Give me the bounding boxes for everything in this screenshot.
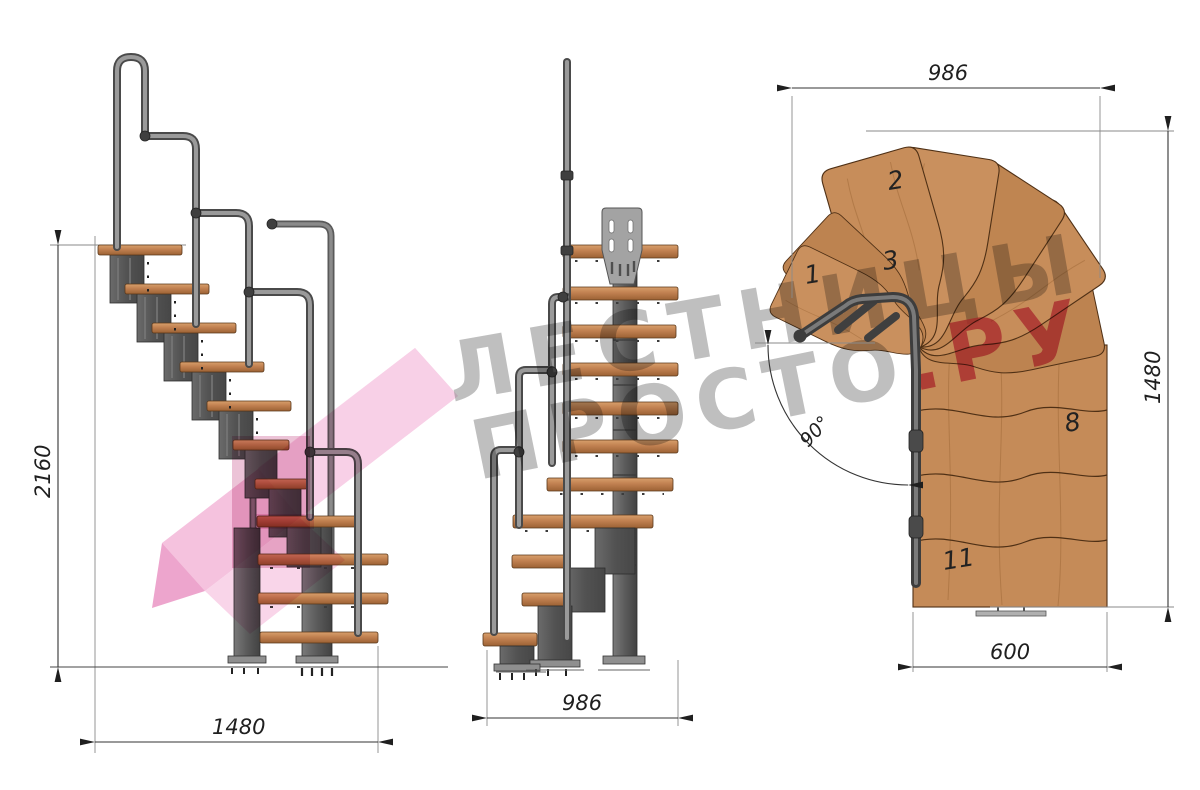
dim-side-run: 1480 [95, 715, 378, 742]
mounting-plate [602, 208, 642, 284]
dim-side-height: 2160 [31, 245, 58, 667]
foot-bracket [976, 607, 1046, 616]
staircase-technical-drawing: ЛЕСТНИЦЫ ПРОСТО.РУ 2160 1480 986 [0, 0, 1200, 790]
dim-label-1480-plan: 1480 [1141, 351, 1165, 404]
dim-label-986-plan: 986 [928, 61, 968, 85]
dim-label-1480-side: 1480 [212, 715, 265, 739]
dim-plan-exit-width: 600 [913, 612, 1107, 672]
drawing-page: ЛЕСТНИЦЫ ПРОСТО.РУ 2160 1480 986 [0, 0, 1200, 790]
dim-label-600: 600 [990, 640, 1030, 664]
tread-number-11: 11 [940, 542, 976, 576]
dim-label-2160: 2160 [31, 445, 55, 498]
dim-label-986-front: 986 [562, 691, 602, 715]
